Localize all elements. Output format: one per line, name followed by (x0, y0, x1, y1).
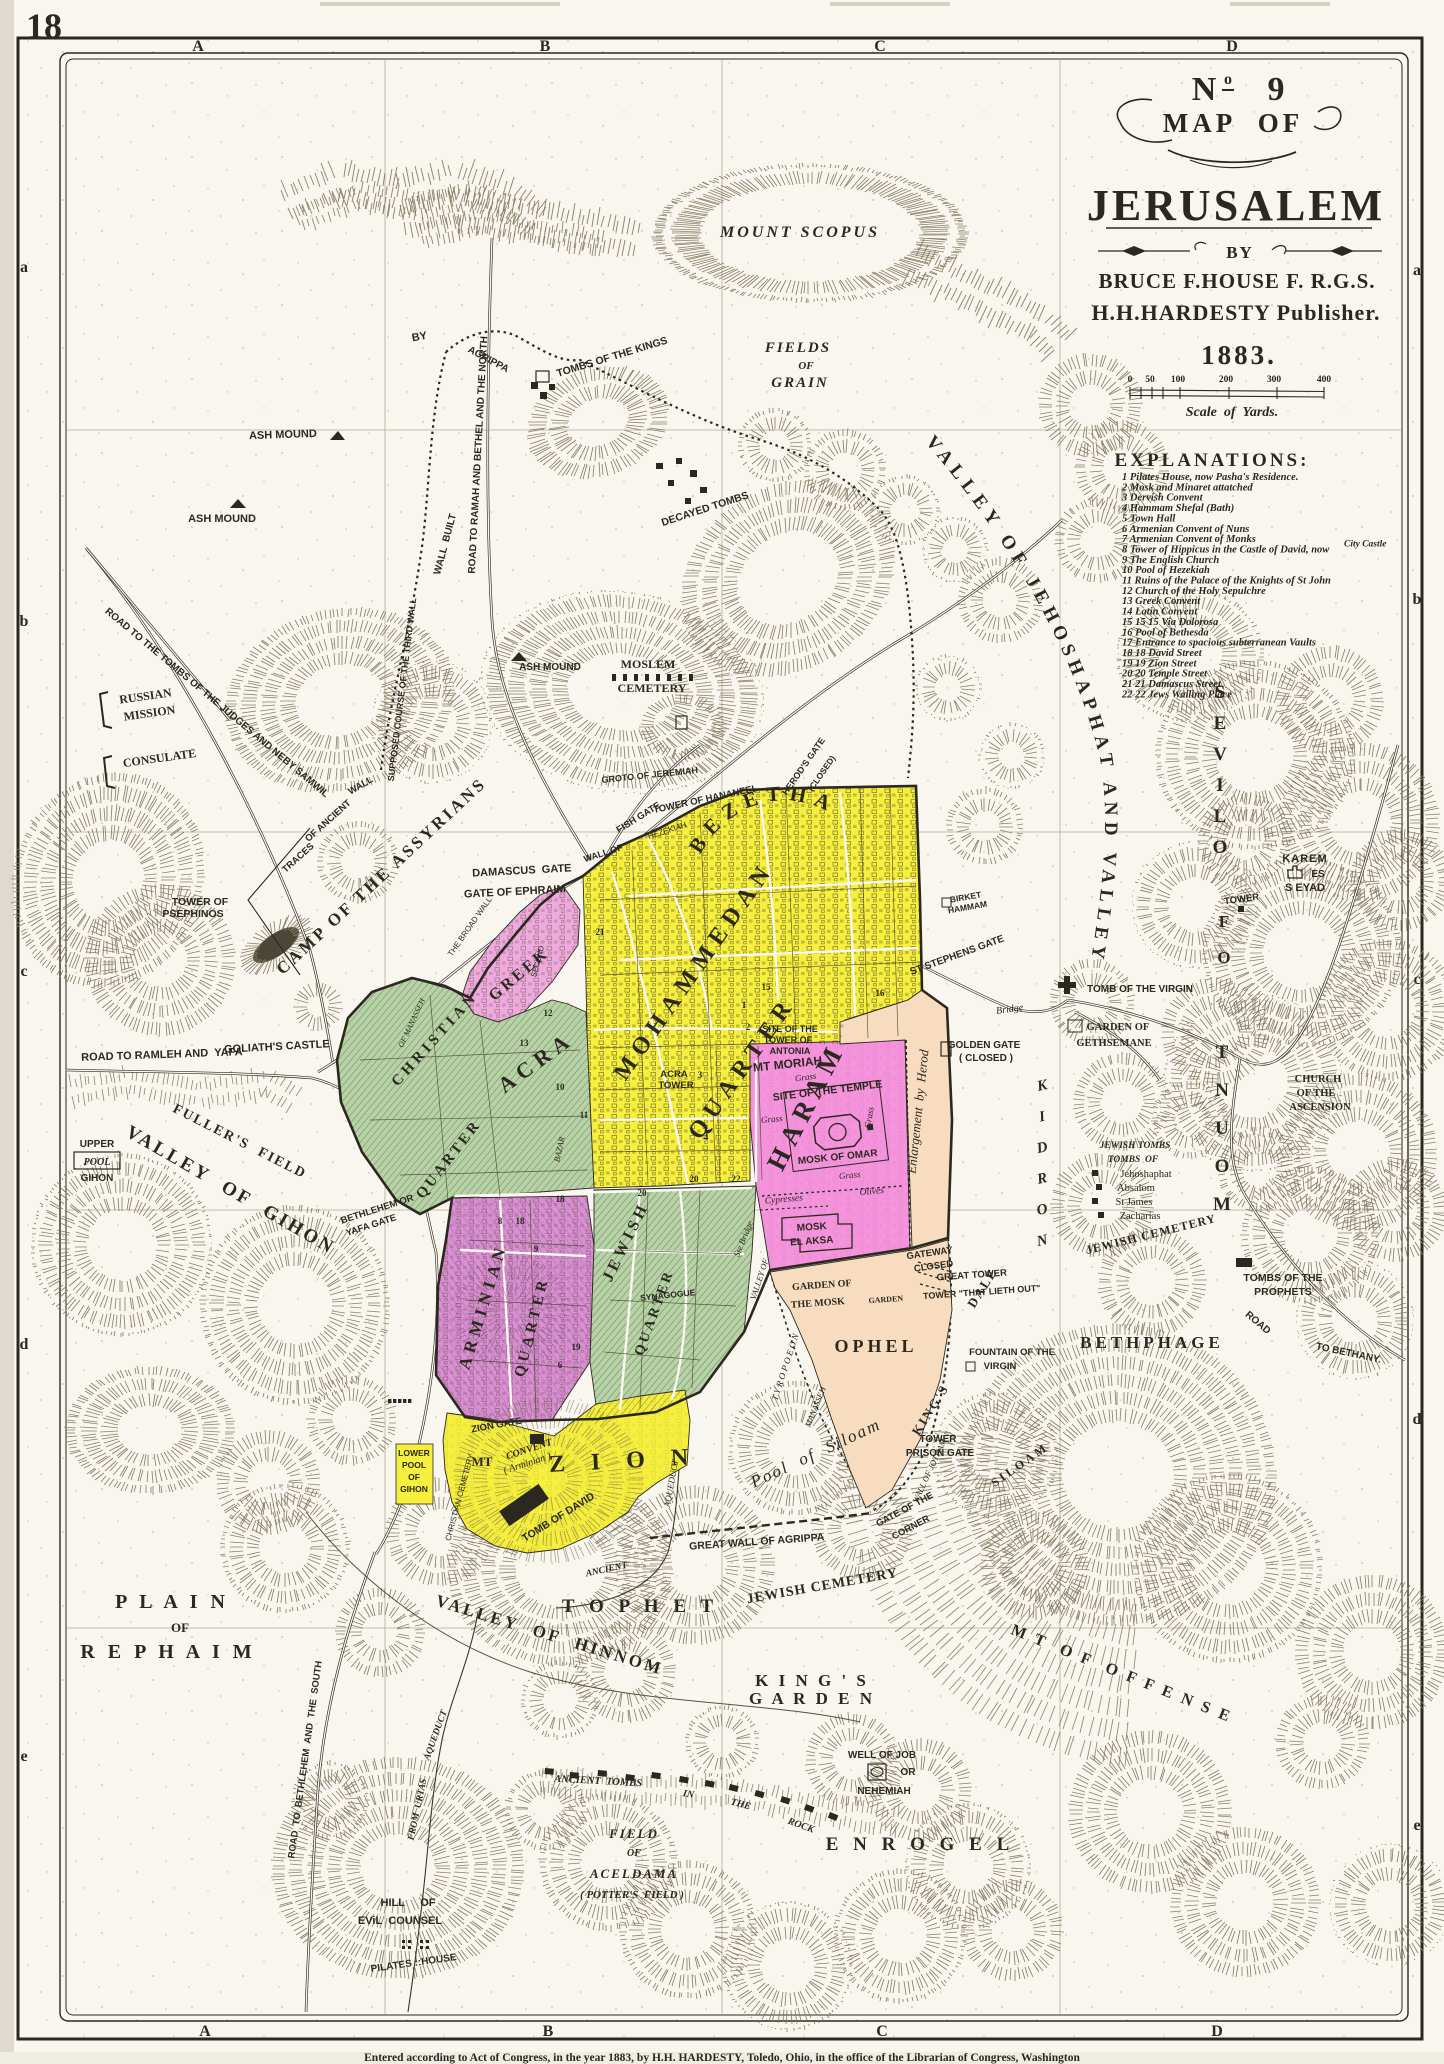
svg-text:e: e (1413, 1817, 1420, 1834)
svg-text:8 Tower of Hippicus in the Cas: 8 Tower of Hippicus in the Castle of Dav… (1122, 544, 1330, 555)
svg-text:11 Ruins of the Palace of the: 11 Ruins of the Palace of the Knights of… (1122, 576, 1331, 587)
svg-text:BRUCE F.HOUSE F. R.G.S.: BRUCE F.HOUSE F. R.G.S. (1098, 269, 1375, 293)
svg-text:OF THE: OF THE (1297, 1088, 1336, 1099)
svg-text:GARDEN OF: GARDEN OF (1087, 1022, 1150, 1033)
svg-text:B: B (540, 38, 551, 55)
svg-text:D: D (1211, 2023, 1223, 2040)
svg-text:TOWER OF: TOWER OF (764, 1035, 813, 1045)
svg-text:16: 16 (876, 988, 886, 998)
svg-text:KAREM: KAREM (1282, 853, 1327, 865)
svg-text:JEWISH TOMBS: JEWISH TOMBS (1099, 1141, 1171, 1151)
svg-text:OF: OF (171, 1620, 189, 1635)
svg-text:MOSK: MOSK (796, 1221, 827, 1234)
svg-text:10: 10 (556, 1082, 566, 1092)
svg-text:7 Armenian Convent of Monks: 7 Armenian Convent of Monks (1122, 534, 1256, 545)
svg-text:5 Town Hall: 5 Town Hall (1122, 513, 1175, 524)
svg-text:O: O (1217, 948, 1230, 967)
svg-text:Absalom: Absalom (1117, 1183, 1155, 1194)
svg-text:11: 11 (580, 1110, 589, 1120)
svg-text:12 Church of the Holy Sepulchr: 12 Church of the Holy Sepulchre (1122, 586, 1266, 597)
svg-text:V: V (1213, 744, 1227, 765)
svg-text:ASCENSION: ASCENSION (1289, 1102, 1351, 1113)
svg-text:10 Pool of Hezekiah: 10 Pool of Hezekiah (1122, 565, 1210, 576)
svg-text:Zacharias: Zacharias (1120, 1211, 1161, 1222)
svg-text:POOL: POOL (402, 1460, 426, 1470)
svg-text:Jehoshaphat: Jehoshaphat (1120, 1169, 1171, 1180)
svg-text:400: 400 (1317, 375, 1332, 385)
svg-text:a: a (20, 259, 28, 276)
svg-text:MOSLEM: MOSLEM (621, 657, 676, 671)
svg-text:2 Mosk and Minaret attatched: 2 Mosk and Minaret attatched (1121, 482, 1253, 493)
svg-text:UPPER: UPPER (80, 1139, 115, 1150)
svg-text:0: 0 (1128, 375, 1133, 385)
svg-text:B: B (543, 2023, 554, 2040)
svg-text:N: N (1192, 71, 1217, 108)
svg-text:O: O (1213, 837, 1228, 858)
svg-text:St James: St James (1115, 1197, 1152, 1208)
svg-text:20: 20 (638, 1188, 648, 1198)
svg-text:3: 3 (698, 1070, 703, 1080)
svg-text:City Castle: City Castle (1344, 539, 1387, 549)
svg-text:9 The English Church: 9 The English Church (1122, 555, 1219, 566)
svg-text:P L A I N: P L A I N (115, 1591, 229, 1613)
svg-text:1883.: 1883. (1201, 340, 1277, 370)
svg-text:e: e (20, 1748, 27, 1765)
svg-text:7: 7 (530, 1338, 535, 1348)
svg-text:100: 100 (1171, 375, 1186, 385)
svg-text:POOL: POOL (84, 1157, 111, 1168)
svg-text:R E P H A I M: R E P H A I M (80, 1641, 255, 1663)
svg-text:K I N G ' S: K I N G ' S (755, 1671, 869, 1690)
svg-text:b: b (20, 613, 29, 630)
svg-text:WELL OF JOB: WELL OF JOB (848, 1750, 916, 1761)
svg-text:Scale of Yards.: Scale of Yards. (1186, 405, 1278, 420)
svg-text:SITE OF THE: SITE OF THE (762, 1024, 818, 1034)
svg-text:C: C (876, 2023, 888, 2040)
svg-text:CEMETERY: CEMETERY (618, 681, 687, 695)
svg-text:BY: BY (1226, 243, 1254, 262)
svg-text:EViL COUNSEL: EViL COUNSEL (358, 1915, 442, 1927)
svg-text:OF: OF (627, 1848, 641, 1859)
svg-text:18: 18 (26, 6, 62, 46)
svg-text:200: 200 (1219, 375, 1234, 385)
svg-text:I: I (1216, 775, 1223, 796)
svg-text:17 Entrance to spacious subt: 17 Entrance to spacious subterranean Vau… (1122, 638, 1316, 649)
svg-text:MAP OF: MAP OF (1163, 108, 1303, 138)
svg-text:22: 22 (732, 1174, 742, 1184)
svg-text:21 21 Damascus Street: 21 21 Damascus Street (1121, 679, 1222, 690)
svg-text:OF: OF (408, 1472, 420, 1482)
svg-text:O: O (1215, 1156, 1230, 1177)
svg-text:13 Greek Convent: 13 Greek Convent (1122, 596, 1201, 607)
svg-text:14 Latin Convent: 14 Latin Convent (1122, 607, 1198, 618)
svg-text:ASH MOUND: ASH MOUND (188, 513, 256, 525)
svg-text:VIRGIN: VIRGIN (984, 1361, 1017, 1372)
svg-text:19 19 Zion Street: 19 19 Zion Street (1122, 658, 1197, 669)
svg-text:1: 1 (742, 1000, 747, 1010)
svg-text:Grass: Grass (761, 1113, 784, 1125)
svg-text:( CLOSED ): ( CLOSED ) (959, 1053, 1013, 1064)
svg-text:FIELD: FIELD (608, 1826, 659, 1841)
svg-text:4: 4 (704, 1132, 709, 1142)
svg-text:OR: OR (901, 1767, 917, 1778)
svg-text:T O P H E T: T O P H E T (562, 1596, 718, 1617)
svg-text:HILL OF: HILL OF (381, 1897, 436, 1909)
svg-text:ACRA: ACRA (660, 1069, 688, 1080)
svg-text:E N R O G E L: E N R O G E L (826, 1834, 1015, 1855)
svg-text:ANTONIA: ANTONIA (770, 1046, 811, 1056)
svg-text:GETHSEMANE: GETHSEMANE (1076, 1038, 1151, 1049)
svg-text:C: C (874, 38, 886, 55)
svg-text:H.H.HARDESTY Publisher.: H.H.HARDESTY Publisher. (1091, 300, 1380, 325)
svg-text:18 18 David Street: 18 18 David Street (1122, 648, 1203, 659)
svg-text:ASH MOUND: ASH MOUND (249, 428, 317, 442)
svg-text:15: 15 (762, 982, 772, 992)
svg-text:300: 300 (1267, 375, 1282, 385)
svg-text:9: 9 (1268, 71, 1285, 108)
svg-text:A: A (199, 2023, 211, 2040)
svg-text:TOMBS OF THE: TOMBS OF THE (1243, 1272, 1322, 1284)
svg-text:LOWER: LOWER (398, 1448, 430, 1458)
svg-text:M: M (1213, 1194, 1231, 1215)
svg-text:E: E (1214, 713, 1227, 734)
svg-text:a: a (1413, 262, 1421, 279)
svg-text:NEHEMIAH: NEHEMIAH (857, 1786, 910, 1797)
svg-text:OPHEL: OPHEL (834, 1336, 917, 1356)
svg-text:6: 6 (558, 1360, 563, 1370)
svg-text:L: L (1214, 806, 1227, 827)
svg-text:b: b (1413, 591, 1422, 608)
svg-text:PSEPHINOS: PSEPHINOS (162, 908, 223, 920)
svg-text:d: d (1413, 1411, 1422, 1428)
svg-text:TOWER OF: TOWER OF (172, 896, 229, 908)
svg-text:JERUSALEM: JERUSALEM (1087, 181, 1385, 230)
svg-text:BETHPHAGE: BETHPHAGE (1080, 1333, 1224, 1352)
svg-text:FIELDS: FIELDS (764, 340, 831, 356)
svg-text:12: 12 (544, 1008, 554, 1018)
svg-text:TOMB OF THE VIRGIN: TOMB OF THE VIRGIN (1087, 984, 1193, 995)
svg-text:ES: ES (1311, 869, 1325, 880)
svg-text:PROPHETS: PROPHETS (1254, 1286, 1312, 1298)
svg-text:d: d (20, 1336, 29, 1353)
svg-text:18: 18 (556, 1194, 566, 1204)
svg-text:F: F (1219, 912, 1229, 931)
svg-text:GIHON: GIHON (81, 1173, 114, 1184)
svg-text:19: 19 (572, 1342, 582, 1352)
svg-text:20: 20 (690, 1174, 700, 1184)
svg-text:13: 13 (520, 1038, 530, 1048)
svg-text:15 15 15 Via Dolorosa: 15 15 15 Via Dolorosa (1122, 617, 1218, 628)
svg-text:50: 50 (1145, 375, 1155, 385)
svg-text:GIHON: GIHON (400, 1484, 428, 1494)
svg-text:16 Pool of Bethesda: 16 Pool of Bethesda (1122, 627, 1209, 638)
svg-text:TOWER: TOWER (658, 1080, 693, 1091)
svg-text:8: 8 (498, 1216, 503, 1226)
svg-text:S EYAD: S EYAD (1285, 882, 1325, 894)
svg-text:D: D (1226, 38, 1238, 55)
svg-text:TOMBS OF: TOMBS OF (1108, 1155, 1159, 1165)
svg-text:T: T (1216, 1042, 1229, 1063)
svg-text:21: 21 (596, 927, 606, 937)
svg-text:A: A (192, 38, 204, 55)
svg-text:GOLDEN GATE: GOLDEN GATE (948, 1040, 1021, 1051)
svg-text:18: 18 (516, 1216, 526, 1226)
svg-text:6 Armenian Convent of Nuns: 6 Armenian Convent of Nuns (1122, 524, 1249, 535)
svg-text:ASH MOUND: ASH MOUND (519, 662, 581, 673)
svg-text:4 Hammam Shefal (Bath): 4 Hammam Shefal (Bath) (1121, 503, 1234, 514)
svg-text:( POTTER'S FIELD ): ( POTTER'S FIELD ) (580, 1889, 684, 1901)
svg-text:1 Pilates House, now Pasha's R: 1 Pilates House, now Pasha's Residence. (1122, 472, 1298, 483)
svg-text:U: U (1215, 1118, 1229, 1139)
svg-text:2: 2 (746, 1022, 751, 1032)
svg-text:G A R D E N: G A R D E N (749, 1689, 875, 1708)
svg-text:3 Dervish Convent: 3 Dervish Convent (1121, 493, 1204, 504)
svg-text:ACELDAMA: ACELDAMA (589, 1866, 678, 1881)
svg-text:EXPLANATIONS:: EXPLANATIONS: (1115, 450, 1310, 471)
svg-text:N: N (1215, 1080, 1229, 1101)
svg-text:Olives: Olives (859, 1186, 884, 1198)
svg-text:c: c (20, 963, 27, 980)
svg-text:FOUNTAIN OF THE: FOUNTAIN OF THE (969, 1347, 1055, 1358)
svg-text:CHURCH: CHURCH (1295, 1074, 1342, 1085)
svg-text:20 20 Temple Street: 20 20 Temple Street (1121, 669, 1208, 680)
svg-text:Entered according to Act of Co: Entered according to Act of Congress, in… (364, 2052, 1080, 2064)
svg-text:9: 9 (534, 1244, 539, 1254)
svg-text:MOUNT SCOPUS: MOUNT SCOPUS (719, 224, 880, 241)
svg-text:OF: OF (798, 360, 814, 372)
svg-text:o: o (1224, 71, 1232, 88)
svg-text:22 22 Jews Wailing Place: 22 22 Jews Wailing Place (1121, 689, 1232, 700)
svg-text:GRAIN: GRAIN (771, 375, 829, 391)
